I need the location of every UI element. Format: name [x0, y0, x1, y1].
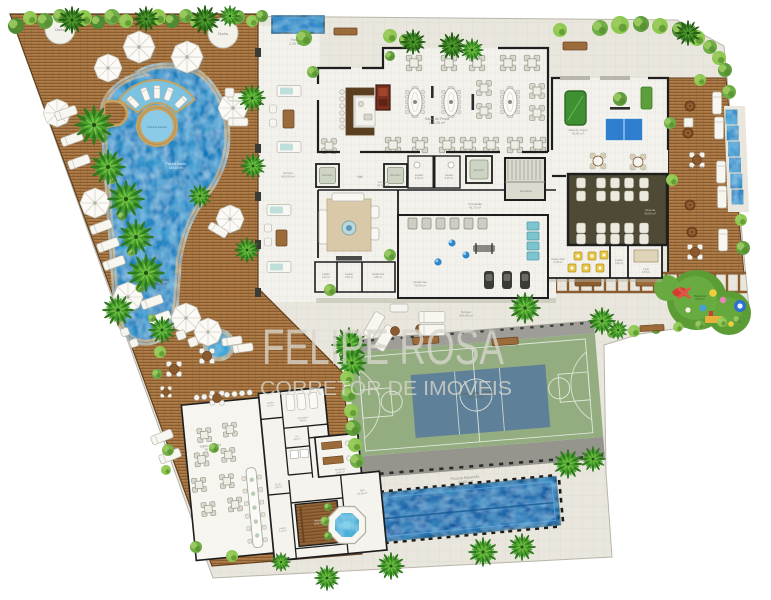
svg-text:61,80 m²: 61,80 m² [689, 168, 699, 172]
svg-text:Piscina Infantil: Piscina Infantil [147, 125, 167, 129]
svg-text:2,21 m²: 2,21 m² [322, 276, 330, 279]
svg-text:CORRETOR DE IMOVEIS: CORRETOR DE IMOVEIS [260, 377, 512, 400]
svg-text:81,82 m²: 81,82 m² [572, 132, 584, 136]
svg-text:4,28 m²: 4,28 m² [374, 276, 382, 279]
svg-text:3,60 m²: 3,60 m² [615, 262, 623, 265]
svg-text:419,00 m²: 419,00 m² [281, 175, 295, 179]
svg-text:6,15 m²: 6,15 m² [445, 177, 454, 180]
svg-text:Hall: Hall [357, 175, 363, 179]
svg-text:2,26 m²: 2,26 m² [345, 276, 353, 279]
svg-text:41,72 m²: 41,72 m² [469, 206, 481, 210]
svg-text:Elevador: Elevador [390, 173, 400, 177]
svg-text:Elevador: Elevador [322, 173, 332, 177]
svg-text:Elevador: Elevador [474, 168, 484, 172]
svg-text:163,65 m²: 163,65 m² [169, 166, 185, 170]
svg-text:419,28 m²: 419,28 m² [459, 314, 473, 318]
svg-text:57,90 m²: 57,90 m² [377, 184, 389, 188]
svg-text:6,75 m²: 6,75 m² [642, 271, 650, 274]
svg-text:Gourmet: Gourmet [358, 109, 369, 113]
svg-text:Ducha: Ducha [55, 28, 65, 32]
svg-text:FELIPE ROSA: FELIPE ROSA [262, 319, 504, 375]
svg-text:6,15 m²: 6,15 m² [415, 177, 424, 180]
svg-text:29,10 m²: 29,10 m² [695, 298, 705, 301]
svg-text:125,35 m²: 125,35 m² [429, 121, 446, 125]
svg-text:75,00 m²: 75,00 m² [414, 284, 426, 288]
svg-text:14,30 m²: 14,30 m² [553, 261, 563, 264]
svg-text:Escadaria: Escadaria [520, 189, 533, 193]
svg-text:43,00 m²: 43,00 m² [644, 212, 656, 216]
svg-text:Ducha: Ducha [218, 32, 228, 36]
